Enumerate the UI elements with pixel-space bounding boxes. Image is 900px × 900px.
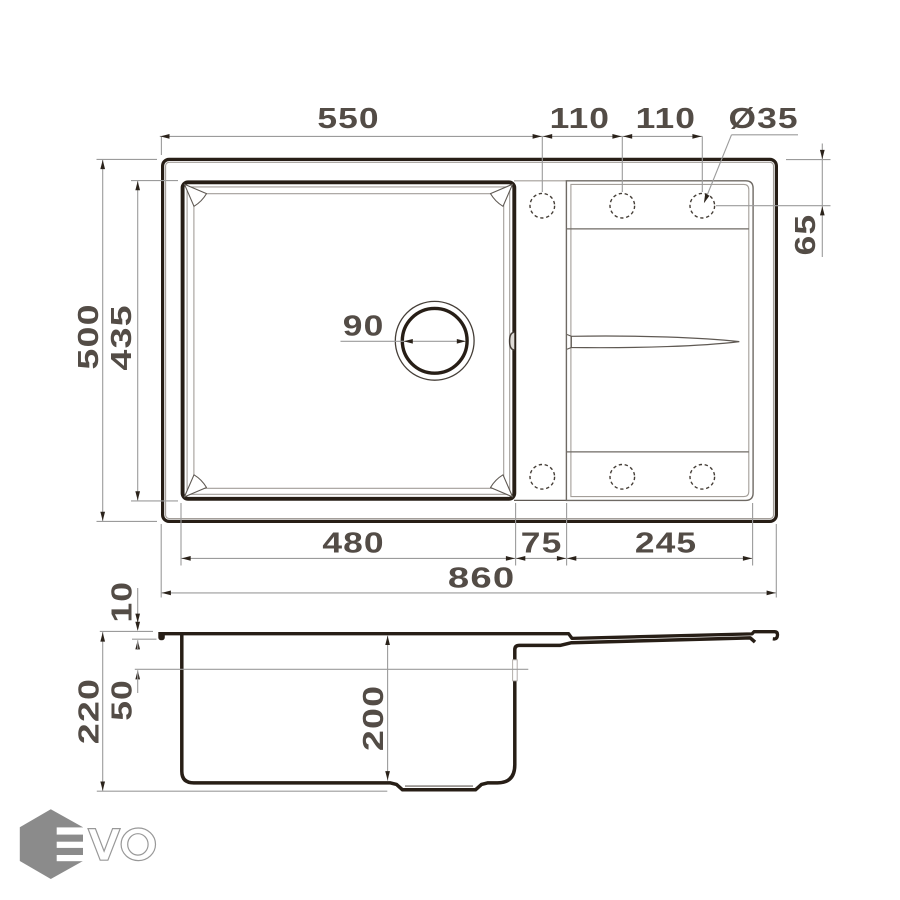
svg-text:860: 860 [448,562,515,594]
svg-text:Ø35: Ø35 [728,102,798,134]
svg-text:480: 480 [322,526,384,558]
svg-text:220: 220 [73,678,105,744]
svg-text:245: 245 [635,526,697,558]
svg-text:500: 500 [73,303,105,369]
svg-text:75: 75 [521,526,563,558]
svg-text:110: 110 [550,102,610,134]
svg-text:550: 550 [317,102,379,134]
svg-text:90: 90 [343,310,385,342]
svg-text:10: 10 [105,581,137,623]
svg-text:65: 65 [789,214,821,256]
svg-text:435: 435 [106,304,138,370]
svg-text:50: 50 [105,679,137,721]
svg-text:110: 110 [636,102,696,134]
svg-text:200: 200 [358,685,390,751]
